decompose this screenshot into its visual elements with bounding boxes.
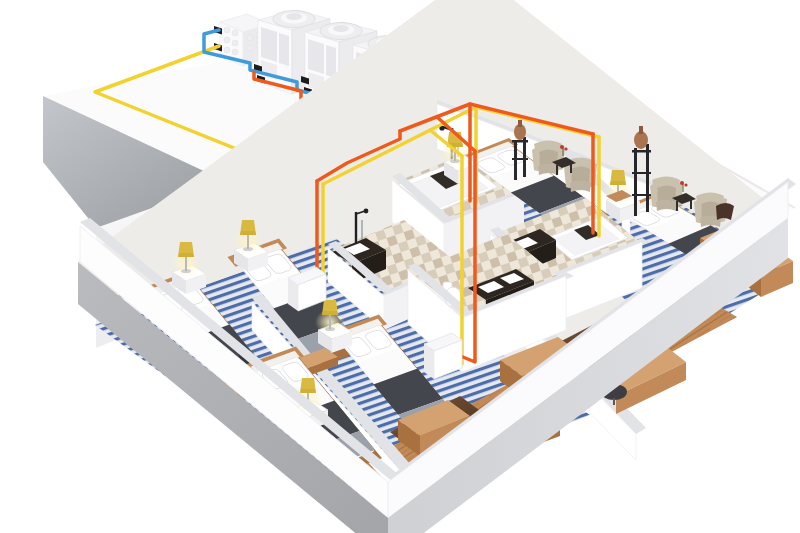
armchair xyxy=(650,177,683,212)
armchair xyxy=(532,141,565,176)
illustration-stage xyxy=(0,0,800,533)
hotel-hvac-cutaway-scene xyxy=(0,0,800,533)
throw-blanket-chair xyxy=(716,203,734,220)
